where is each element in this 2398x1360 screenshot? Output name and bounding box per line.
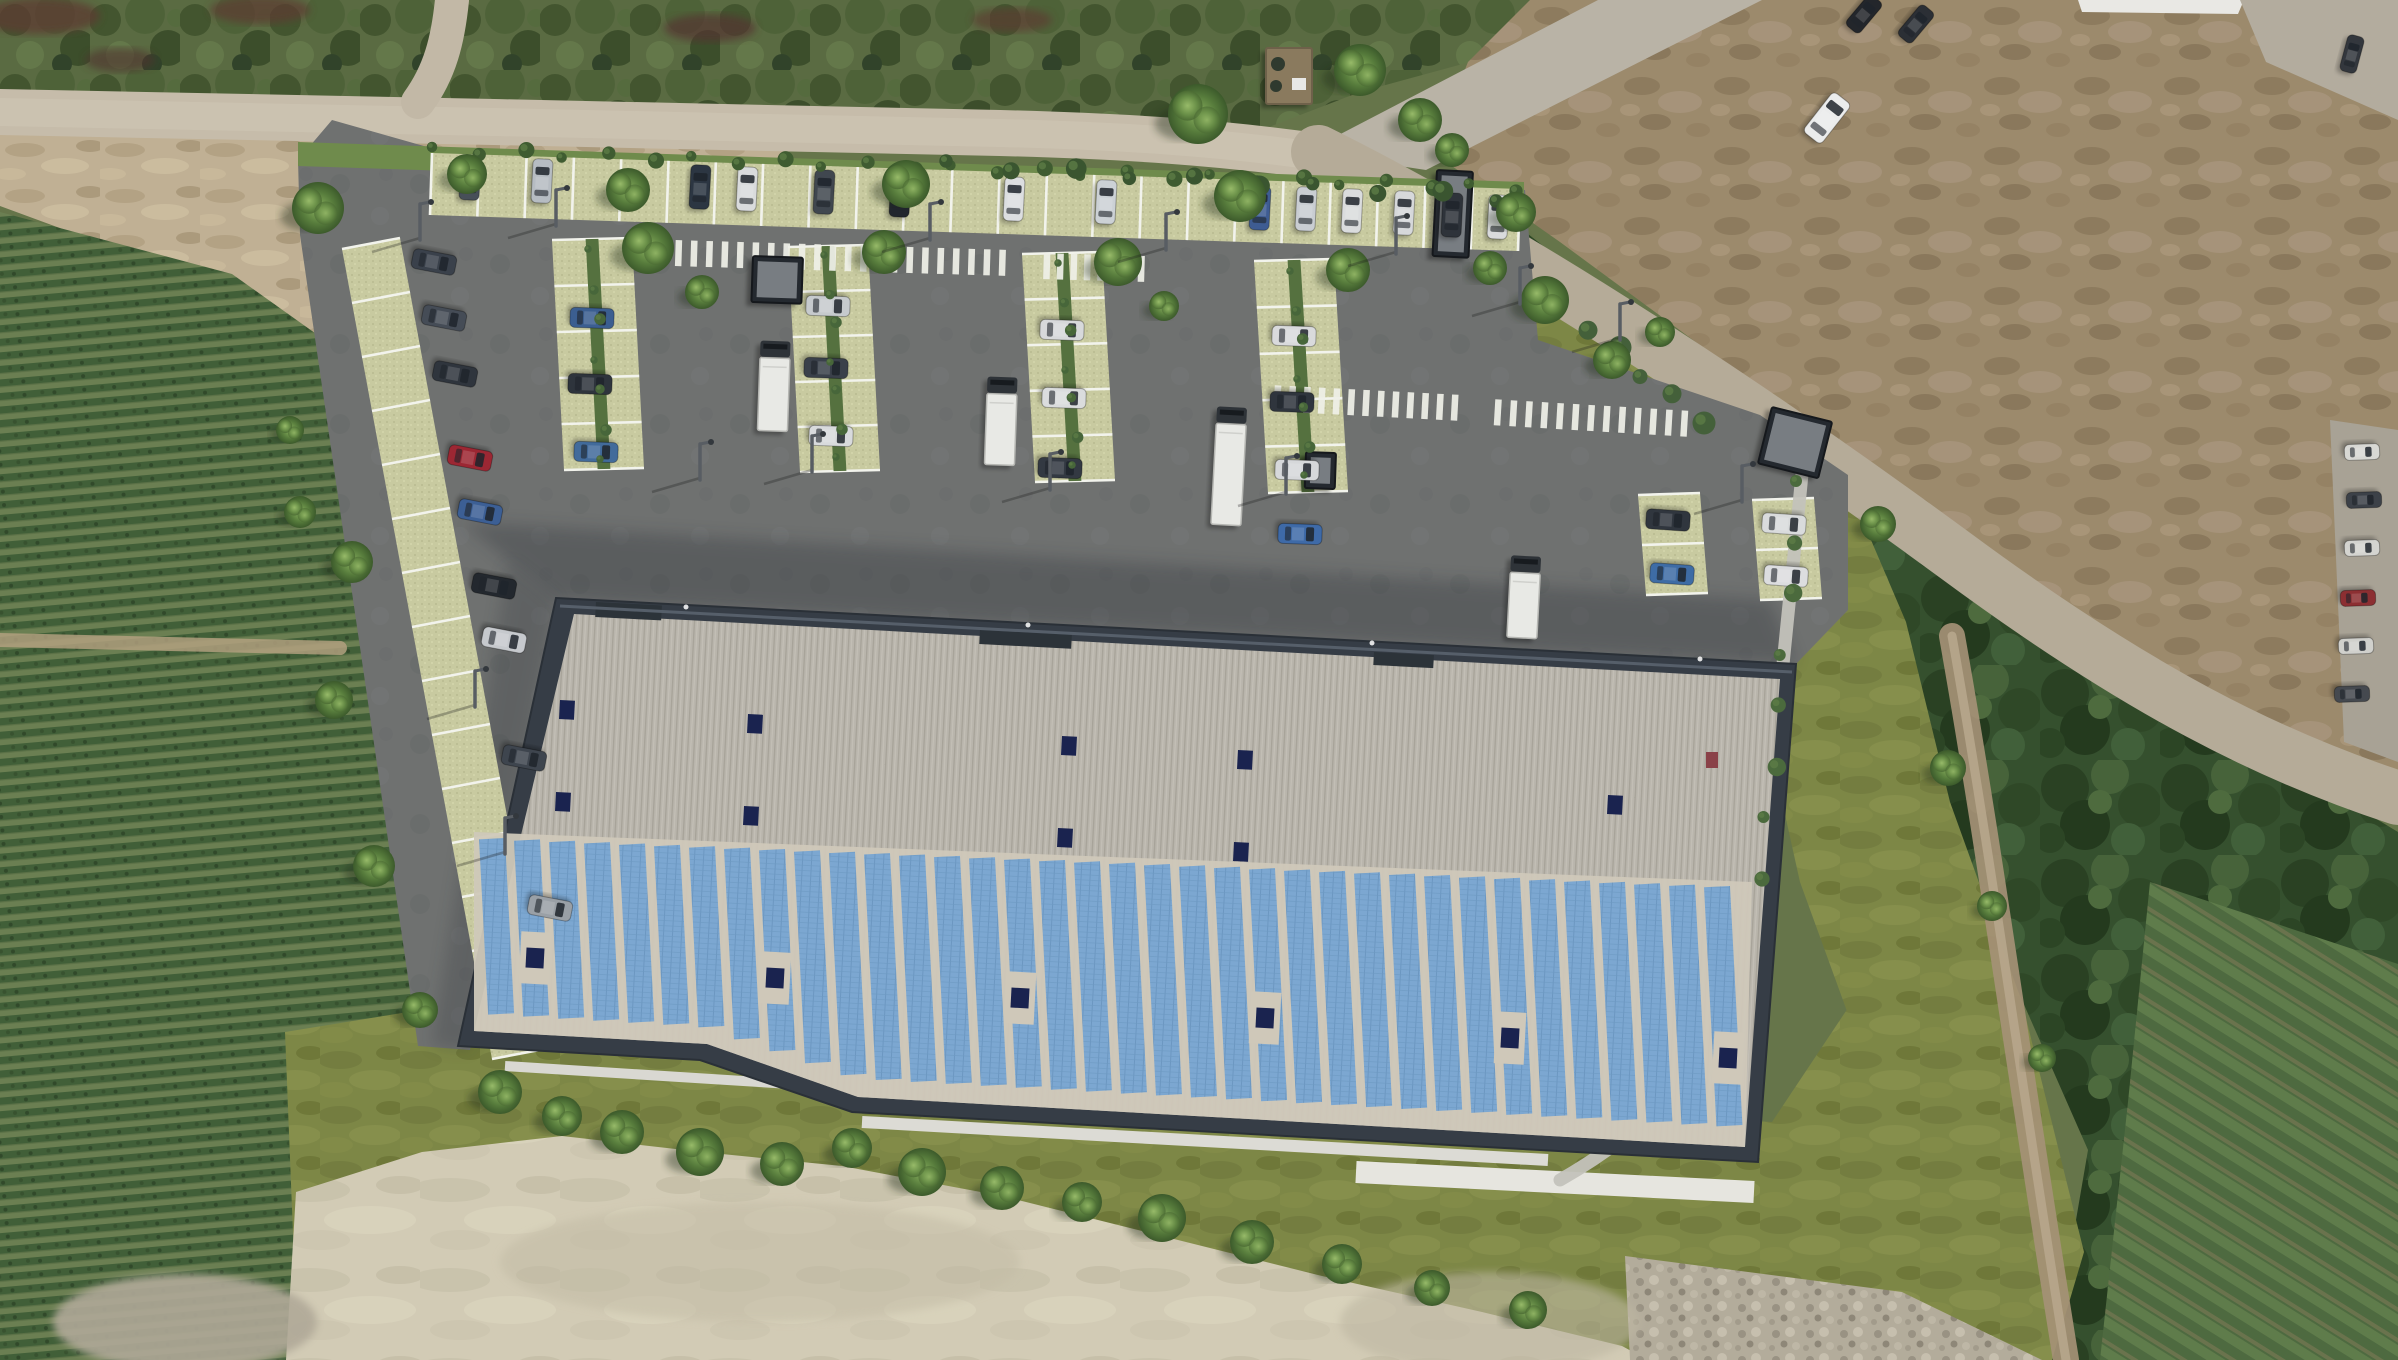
solar-panel-strip [1297,870,1309,1102]
parked-car [1037,316,1085,341]
solar-panel-strip [1192,866,1204,1097]
shrub-highlight [1491,196,1497,202]
parked-car [1758,509,1806,535]
tree-canopy-lobe [902,178,924,200]
solar-panel-strip [807,851,818,1063]
zebra-bar [1046,253,1047,279]
tree-canopy-lobe [1541,294,1563,316]
shrub-highlight [604,148,610,154]
car-rear-window [813,298,819,312]
solar-panel-strip [1472,877,1484,1112]
roof-skylight [525,948,544,969]
shrub-highlight [1511,186,1517,192]
shrub-highlight [1293,307,1297,311]
car-rear-window [1444,224,1458,231]
shelter-roof [1266,48,1312,104]
shrub-highlight [1122,166,1128,172]
shrub-highlight [602,426,607,431]
solar-panel-strip [1507,878,1519,1114]
facade-light [1026,623,1031,628]
shrub-highlight [832,386,836,390]
zebra-bar [956,248,957,274]
car-windshield [1397,199,1411,208]
shrub-highlight [1168,173,1175,180]
parked-car [1642,505,1690,531]
zebra-bar [1073,254,1074,280]
facade-light [1370,641,1375,646]
shrub-highlight [1298,335,1303,340]
solar-panel-strip [1262,869,1274,1101]
tree-canopy-lobe [1525,1305,1542,1322]
tree-canopy-lobe [619,1127,639,1147]
pole-lamp [1628,299,1634,305]
solar-panel-strip [912,855,924,1081]
car-roof-highlight [1292,527,1304,540]
tree-canopy-lobe [298,508,312,522]
tree-canopy-lobe [1990,902,2004,916]
solar-panel-strip [1367,873,1379,1106]
shrub-highlight [1287,268,1290,271]
zebra-bar [1621,407,1623,433]
crop-rows-bottomright [2100,882,2398,1360]
tree-canopy-lobe [497,1087,517,1107]
shrub-highlight [1335,181,1340,186]
shrub-highlight [833,454,836,457]
car-rear-window [1049,390,1055,404]
shelter-island [746,256,803,308]
roof-skylight [1061,736,1077,756]
zebra-bar [1351,389,1352,415]
parked-car [1269,322,1317,347]
pole-lamp [1174,209,1180,215]
zebra-bar [1336,388,1337,414]
zebra-bar [909,247,910,273]
solar-panel-strip [667,846,676,1025]
car-rear-window [577,310,583,324]
tree-canopy-lobe [1194,107,1221,134]
tree-canopy-lobe [699,288,714,303]
box-truck [753,340,790,435]
parked-car [565,370,613,395]
tree-canopy-lobe [464,169,482,187]
shrub-highlight [827,359,830,362]
car-windshield [1099,188,1113,197]
shrub-highlight [993,168,999,174]
car-roof-highlight [1284,395,1296,408]
car-roof-highlight [1056,391,1068,404]
zebra-bar [832,245,833,271]
shrub-highlight [597,456,600,459]
parked-car [2331,682,2370,702]
solar-panel-strip [1612,883,1624,1120]
tree-canopy-lobe [1079,1197,1097,1215]
car-roof-highlight [740,185,754,198]
car-rear-window [534,190,548,197]
car-rear-window [1771,568,1778,582]
roof-skylight [1233,842,1249,862]
tree-canopy-lobe [331,695,348,712]
zebra-bar [1668,410,1670,436]
zebra-bar [1439,394,1440,420]
zebra-bar [740,242,741,268]
tree-canopy-lobe [644,242,667,265]
solar-panel-strip [597,843,606,1020]
parked-car [1092,179,1117,227]
car-windshield [740,175,754,184]
car-roof-highlight [693,183,707,196]
shrub-highlight [1206,170,1211,175]
zebra-bar [986,249,987,275]
tree-canopy-lobe [349,557,368,576]
car-roof-highlight [817,188,831,201]
shrub-highlight [1770,760,1778,768]
pole-lamp [1528,263,1534,269]
car-rear-window [739,198,753,205]
car-windshield [2361,593,2368,603]
car-windshield [2365,447,2372,457]
shrub-highlight [1773,699,1780,706]
trailer-seam [763,367,787,368]
shrub-highlight [832,318,837,323]
shrub-highlight [1300,403,1304,407]
car-windshield [2367,495,2374,505]
car-windshield [817,178,831,187]
car-rear-window [1769,516,1776,530]
tree-canopy-lobe [1945,764,1961,780]
tree-canopy-lobe [1236,190,1259,213]
parked-car [733,166,758,214]
zebra-bar [678,240,679,266]
pole-lamp [1294,453,1300,459]
car-roof-highlight [1007,195,1021,208]
shrub-highlight [838,425,843,430]
car-roof-highlight [2357,495,2367,504]
zebra-bar [1380,391,1381,417]
box-truck [980,376,1017,469]
shrub-highlight [590,286,594,290]
shrub-highlight [591,357,594,360]
car-windshield [1306,527,1314,541]
zebra-bar [694,241,695,267]
truck-trailer [984,393,1016,465]
parked-car [1000,176,1025,224]
car-roof-highlight [1660,513,1673,527]
shrub-highlight [821,252,824,255]
solar-panel-strip [1577,881,1589,1118]
shrub-highlight [1298,171,1305,178]
pole-lamp [820,431,826,437]
roof-skylight [555,792,571,812]
pole-lamp [1058,449,1064,455]
tree-canopy-lobe [1356,63,1379,86]
car-roof-highlight [541,900,555,915]
tree-canopy-lobe [288,427,301,440]
zebra-bar [1528,401,1530,427]
zebra-bar [1497,399,1499,425]
shelter-panel [757,261,798,298]
car-roof-highlight [1776,517,1789,531]
tree-canopy-lobe [2040,1055,2053,1068]
parked-car [571,438,619,463]
tree-canopy-lobe [1249,1237,1269,1257]
roof-skylight [1718,1048,1737,1069]
pole-lamp [483,666,489,672]
shrub-highlight [863,157,869,163]
roof-skylight [1500,1028,1519,1049]
zebra-bar [940,248,941,274]
parked-car [1272,456,1320,481]
tree-canopy-lobe [559,1111,577,1129]
solar-panel-strip [877,854,889,1080]
car-roof-highlight [1445,211,1459,224]
parked-car [1275,520,1323,545]
car-roof-highlight [820,299,832,312]
aerial-site-render [0,0,2398,1360]
car-rear-window [2350,543,2355,553]
roof-skylight [1057,828,1073,848]
zebra-bar [971,249,972,275]
car-roof-highlight [2355,447,2365,456]
car-roof-highlight [515,750,529,765]
site-plan-canvas [0,0,2398,1360]
shrub-highlight [1581,323,1590,332]
car-windshield [535,167,549,176]
car-roof-highlight [435,310,449,325]
car-windshield [1445,201,1459,210]
pole-lamp [513,813,519,819]
car-roof-highlight [461,450,475,465]
parked-car [1338,188,1363,236]
car-roof-highlight [1052,461,1064,474]
truck-trailer [757,357,790,431]
car-roof-highlight [1345,207,1359,220]
zebra-bar [1544,402,1546,428]
shrub-highlight [585,246,588,249]
car-windshield [1299,195,1313,204]
car-roof-highlight [1778,569,1791,583]
shrub-highlight [428,143,433,148]
pole-lamp [708,439,714,445]
zebra-bar [1060,254,1061,280]
parked-car [2341,536,2380,556]
solar-panel-strip [492,839,501,1014]
tree-canopy-lobe [849,1143,867,1161]
roof-skylight [1255,1008,1274,1029]
car-windshield [2365,543,2372,553]
roof-skylight [1010,988,1029,1009]
shrub-highlight [1069,462,1072,465]
tree-canopy-lobe [1429,1284,1445,1300]
roof-skylight [743,806,759,826]
car-rear-window [1098,211,1112,218]
zebra-bar [1424,393,1425,419]
car-roof-highlight [1054,323,1066,336]
tree-canopy-lobe [1658,328,1672,342]
shrub-highlight [1792,477,1797,482]
solar-panel-strip [527,840,536,1016]
car-windshield [1007,185,1021,194]
shrub-highlight [1756,873,1763,880]
vineyard-track [0,640,340,648]
car-rear-window [581,444,587,458]
parked-car [1039,384,1087,409]
shrub-highlight [1634,371,1641,378]
tree-canopy-lobe [417,1006,433,1022]
solar-panel-strip [842,852,854,1074]
utility-shed-photo [1261,48,1312,108]
shrub-highlight [1371,187,1379,195]
car-roof-highlight [2349,641,2359,650]
car-rear-window [2344,641,2349,651]
tree-canopy-lobe [371,861,390,880]
car-windshield [834,299,842,313]
zebra-bar [1683,411,1685,437]
car-roof-highlight [1289,463,1301,476]
shrub-highlight [1124,173,1130,179]
tree-canopy-lobe [1449,146,1464,161]
shrub-highlight [1066,326,1071,331]
shrub-highlight [1775,651,1780,656]
shrub-highlight [520,144,527,151]
car-windshield [1791,569,1800,584]
shed-detail [1292,78,1306,90]
zebra-bar [1559,403,1561,429]
tree-canopy-lobe [918,1166,940,1188]
car-roof-highlight [446,366,460,381]
shrub-highlight [1695,414,1705,424]
parked-car [810,169,835,217]
solar-panel-strip [1402,874,1414,1108]
shrub-highlight [1061,299,1065,303]
shrub-highlight [596,315,601,320]
zebra-bar [1410,392,1411,418]
solar-panel-strip [737,848,747,1038]
parked-car [801,354,849,379]
zebra-bar [817,244,818,270]
truck-windshield [990,380,1014,386]
roof-skylight [1237,750,1253,770]
sand-shade [500,1202,1020,1322]
shrub-highlight [1305,443,1310,448]
shed-detail [1271,57,1285,71]
parked-car [686,164,711,212]
shrub-highlight [826,291,830,295]
car-rear-window [2350,447,2355,457]
solar-panel-strip [562,841,571,1018]
tree-canopy-lobe [314,202,337,225]
car-windshield [693,173,707,182]
car-rear-window [575,376,581,390]
tree-canopy-lobe [1875,520,1891,536]
shrub-highlight [558,154,563,159]
solar-panel-strip [1122,863,1134,1093]
car-windshield [1677,567,1686,582]
facade-light [684,605,689,610]
car-roof-highlight [1299,205,1313,218]
solar-panel-strip [1682,885,1694,1124]
car-roof-highlight [485,578,499,593]
car-rear-window [1396,222,1410,229]
tree-canopy-lobe [1158,1212,1180,1234]
solar-panel-strip [1052,861,1064,1089]
stalls-island-3 [1022,252,1115,482]
solar-panel-strip [702,847,711,1027]
trailer-seam [990,403,1014,404]
tree-canopy-lobe [779,1159,799,1179]
car-rear-window [1344,220,1358,227]
zebra-bar [1606,406,1608,432]
zebra-bar [1575,404,1577,430]
car-rear-window [1047,322,1053,336]
car-rear-window [692,196,706,203]
parked-car [2335,634,2374,654]
box-truck [1503,555,1541,643]
shrub-highlight [1068,394,1072,398]
car-rear-window [1006,208,1020,215]
car-rear-window [816,201,830,208]
car-rear-window [2352,495,2357,505]
solar-panel-strip [772,850,782,1051]
car-rear-window [2340,689,2345,699]
car-roof-highlight [582,377,594,390]
parked-car [2341,440,2380,460]
car-rear-window [1298,218,1312,225]
roof-skylight [1607,795,1623,815]
red-bush [85,48,155,72]
tree-canopy-lobe [625,185,645,205]
pole-lamp [428,199,434,205]
zebra-bar [1365,390,1366,416]
box-truck [1207,406,1247,530]
tree-canopy-lobe [1162,302,1176,316]
car-roof-highlight [1099,198,1113,211]
roof-vent-red [1706,752,1718,768]
shrub-highlight [1465,180,1470,185]
car-rear-window [2346,593,2351,603]
shrub-highlight [1789,537,1796,544]
car-roof-highlight [2345,689,2355,698]
tree-canopy-lobe [999,1183,1019,1203]
zebra-bar [925,247,926,273]
pole-lamp [564,185,570,191]
zebra-bar [1590,405,1592,431]
shrub-highlight [1435,183,1444,192]
parked-car [1646,559,1694,585]
shrub-highlight [1039,162,1046,169]
parked-car [2343,488,2382,508]
parked-car [1760,561,1808,587]
shrub-highlight [1381,175,1387,181]
car-roof-highlight [2351,593,2361,602]
shrub-highlight [596,385,600,389]
solar-panel-strip [1332,872,1344,1105]
zebra-bar [1321,388,1322,414]
truck-windshield [763,344,787,350]
red-bush [664,14,756,42]
solar-panel-strip [1087,862,1099,1091]
car-rear-window [811,360,817,374]
shrub-highlight [1062,367,1065,370]
car-rear-window [1279,328,1285,342]
car-windshield [1673,513,1682,528]
car-roof-highlight [1286,329,1298,342]
roof-skylight [559,700,575,720]
shrub-highlight [1068,161,1077,170]
solar-panel-strip [1717,887,1729,1126]
tree-canopy-lobe [1609,355,1626,372]
car-roof-highlight [495,632,509,647]
shrub-highlight [1073,433,1078,438]
